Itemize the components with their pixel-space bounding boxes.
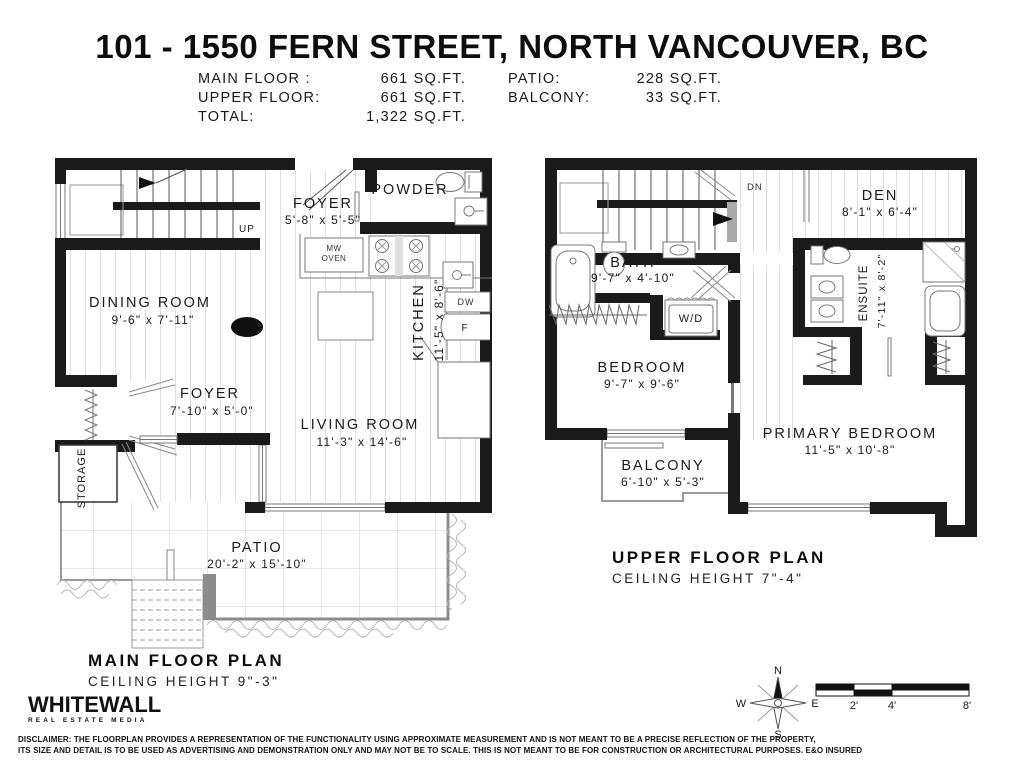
kitchen-dims: 11'-5" x 8'-6" — [432, 278, 446, 361]
mw-label: MW — [326, 244, 341, 253]
upper-floor-plan-title: UPPER FLOOR PLAN — [612, 548, 826, 568]
area-row: BALCONY: 33 SQ.FT. — [508, 89, 722, 108]
area-row: UPPER FLOOR: 661 SQ.FT. — [198, 89, 466, 108]
kitchen-sink-icon — [443, 262, 473, 288]
ensuite — [811, 242, 965, 376]
page-title: 101 - 1550 FERN STREET, NORTH VANCOUVER,… — [0, 28, 1024, 66]
main-floor-ceiling-height: CEILING HEIGHT 9"-3" — [88, 674, 284, 689]
balcony-label: BALCONY — [621, 458, 704, 474]
area-value: 228 SQ.FT. — [630, 70, 722, 89]
foyer-lower-dims: 7'-10" x 5'-0" — [170, 404, 254, 418]
main-floor-plan-title: MAIN FLOOR PLAN — [88, 651, 284, 671]
powder-label: POWDER — [371, 182, 448, 198]
area-value: 661 SQ.FT. — [358, 70, 466, 89]
bath-dims: 9'-7" x 4'-10" — [591, 271, 675, 285]
area-label: BALCONY: — [508, 89, 630, 108]
area-value: 661 SQ.FT. — [358, 89, 466, 108]
area-label: UPPER FLOOR: — [198, 89, 358, 108]
upper-floor-plan-drawing: BALCONY 6'-10" x 5'-3" — [545, 150, 980, 545]
upper-floor-caption: UPPER FLOOR PLAN CEILING HEIGHT 7"-4" — [612, 548, 826, 586]
patio-gate-post — [167, 550, 174, 580]
logo-tagline: REAL ESTATE MEDIA — [28, 717, 161, 724]
up-label: UP — [239, 224, 255, 235]
living-room-dims: 11'-3" x 14'-6" — [317, 435, 408, 449]
upper-floor-ceiling-height: CEILING HEIGHT 7"-4" — [612, 571, 826, 586]
ensuite-door-icon — [888, 338, 891, 376]
logo-name: WHITEWALL — [28, 695, 161, 715]
scale-4ft-label: 4' — [888, 700, 896, 712]
storage-label: STORAGE — [76, 448, 88, 509]
floorplan-page: { "title": "101 - 1550 FERN STREET, NORT… — [0, 0, 1024, 768]
area-row: TOTAL: 1,322 SQ.FT. — [198, 108, 466, 127]
kitchen-island — [318, 292, 373, 340]
hanging-clothes-icon — [817, 342, 836, 372]
foyer-exit-door-icon — [140, 436, 177, 443]
foyer-upper-label: FOYER — [293, 196, 353, 212]
compass-rose-icon: N S W E — [732, 663, 824, 739]
logo: WHITEWALL REAL ESTATE MEDIA — [28, 695, 161, 724]
den-label: DEN — [862, 188, 899, 204]
area-table-left: MAIN FLOOR : 661 SQ.FT. UPPER FLOOR: 661… — [198, 70, 466, 127]
dining-room-label: DINING ROOM — [89, 295, 211, 311]
area-table-right: PATIO: 228 SQ.FT. BALCONY: 33 SQ.FT. — [508, 70, 722, 108]
dw-label: DW — [458, 297, 475, 307]
primary-bedroom-label: PRIMARY BEDROOM — [763, 426, 938, 442]
north-pointer — [774, 679, 782, 698]
shower-icon — [923, 242, 965, 282]
scale-2ft-label: 2' — [850, 700, 858, 712]
primary-bedroom-dims: 11'-5" x 10'-8" — [805, 443, 896, 457]
ensuite-label: ENSUITE — [858, 265, 870, 322]
sink-icon — [455, 198, 487, 225]
area-row: PATIO: 228 SQ.FT. — [508, 70, 722, 89]
oven-label: OVEN — [322, 254, 347, 263]
dining-table-icon — [231, 317, 263, 337]
sink-icon — [663, 242, 695, 258]
patio-label: PATIO — [231, 540, 282, 556]
foyer-upper-dims: 5'-8" x 5'-5" — [285, 213, 361, 227]
bath-label: BATH — [610, 255, 656, 271]
dn-label: DN — [747, 182, 763, 193]
living-room-label: LIVING ROOM — [301, 417, 420, 433]
scale-bar: 2' 4' 8' — [812, 680, 1012, 714]
area-label: TOTAL: — [198, 108, 358, 127]
disclaimer-line-1: DISCLAIMER: THE FLOORPLAN PROVIDES A REP… — [18, 735, 1020, 746]
foyer-lower-label: FOYER — [180, 386, 240, 402]
balcony-door-icon — [605, 443, 663, 448]
toilet-icon — [811, 246, 850, 264]
area-label: MAIN FLOOR : — [198, 70, 358, 89]
stove-icon — [369, 236, 429, 276]
patio-steps — [132, 574, 216, 648]
fridge-label: F — [461, 323, 468, 334]
main-floor-plan-drawing: PATIO 20'-2" x 15'-10" — [55, 150, 500, 652]
compass-w-label: W — [736, 698, 747, 710]
wd-label: W/D — [679, 313, 703, 325]
bathtub-icon — [925, 286, 965, 336]
compass-n-label: N — [774, 665, 782, 677]
disclaimer-line-2: ITS SIZE AND DETAIL IS TO BE USED AS ADV… — [18, 746, 1020, 757]
bedroom-dims: 9'-7" x 9'-6" — [604, 377, 680, 391]
primary-door-icon — [731, 383, 734, 413]
balcony: BALCONY 6'-10" x 5'-3" — [602, 440, 728, 501]
area-value: 33 SQ.FT. — [630, 89, 722, 108]
double-sink-icon — [811, 276, 843, 322]
kitchen-label: KITCHEN — [411, 283, 427, 361]
patio-dims: 20'-2" x 15'-10" — [207, 557, 307, 571]
area-label: PATIO: — [508, 70, 630, 89]
kitchen-cabinet — [438, 362, 490, 438]
staircase-upper — [560, 170, 737, 250]
scale-8ft-label: 8' — [963, 700, 971, 712]
disclaimer: DISCLAIMER: THE FLOORPLAN PROVIDES A REP… — [18, 735, 1020, 756]
den-dims: 8'-1" x 6'-4" — [842, 205, 918, 219]
area-row: MAIN FLOOR : 661 SQ.FT. — [198, 70, 466, 89]
balcony-dims: 6'-10" x 5'-3" — [621, 475, 705, 489]
area-value: 1,322 SQ.FT. — [358, 108, 466, 127]
dining-room-dims: 9'-6" x 7'-11" — [111, 313, 194, 327]
bedroom-label: BEDROOM — [598, 360, 687, 376]
main-floor-caption: MAIN FLOOR PLAN CEILING HEIGHT 9"-3" — [88, 651, 284, 689]
ensuite-dims: 7'-11" x 8'-2" — [876, 254, 888, 329]
